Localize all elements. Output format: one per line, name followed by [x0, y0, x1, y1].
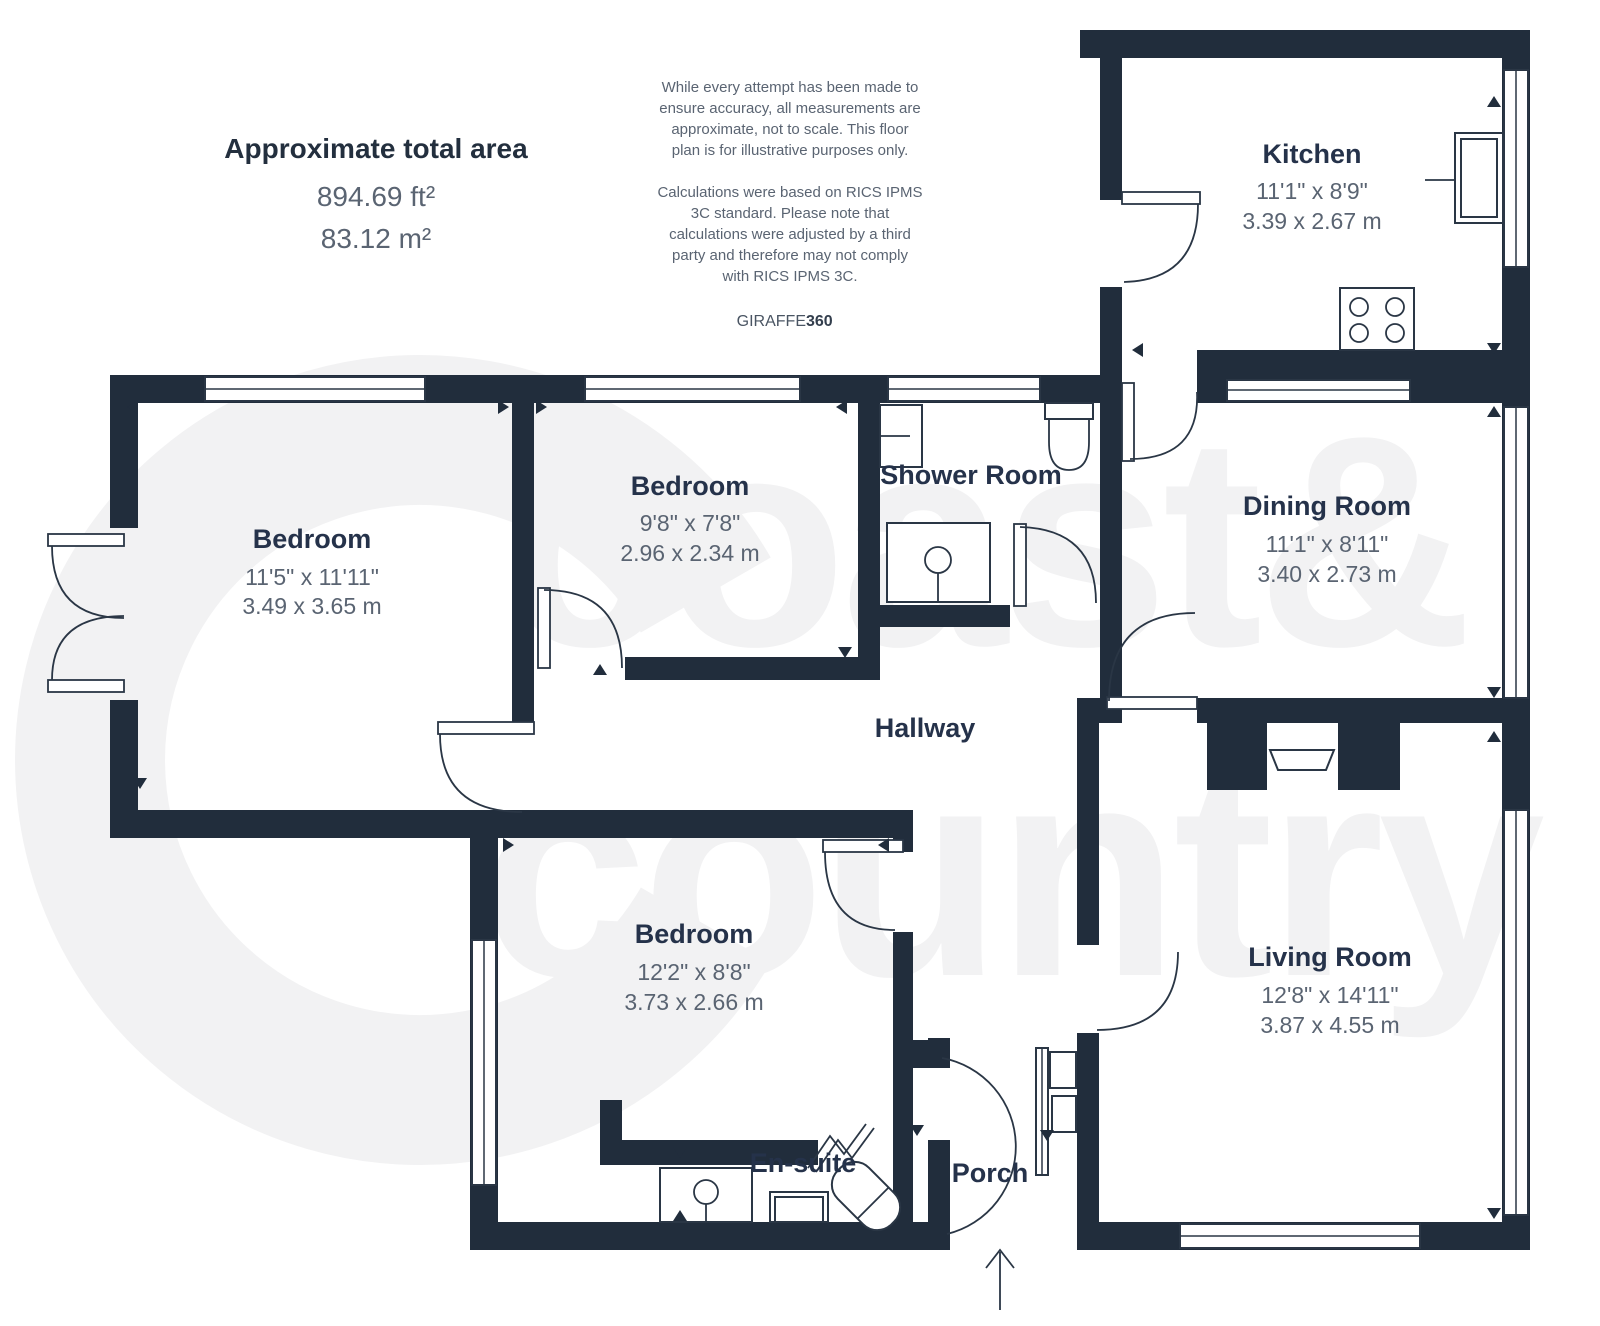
disclaimer-line: While every attempt has been made to: [662, 79, 919, 96]
room-label-porch: Porch: [952, 1158, 1029, 1188]
shower-tray: [887, 523, 990, 602]
window: [205, 377, 425, 401]
wall-segment: [928, 1140, 950, 1250]
wall-segment: [110, 700, 138, 812]
kitchen-sink: [1425, 133, 1503, 223]
room-dims-metric: 3.49 x 3.65 m: [242, 593, 381, 619]
sink: [770, 1192, 828, 1222]
room-dims-metric: 2.96 x 2.34 m: [620, 540, 759, 566]
room-label-kitchen: Kitchen: [1262, 139, 1361, 169]
room-label-bedroom2: Bedroom: [631, 471, 750, 501]
door: [942, 1058, 1016, 1234]
shower-tray: [660, 1168, 752, 1222]
room-dims-imperial: 12'2" x 8'8": [637, 959, 750, 985]
disclaimer-line: party and therefore may not comply: [672, 247, 908, 264]
entrance-arrow-icon: [986, 1250, 1014, 1310]
disclaimer: While every attempt has been made to ens…: [657, 79, 922, 330]
brand-suffix: 360: [806, 313, 833, 330]
window: [472, 940, 496, 1185]
room-dims-metric: 3.87 x 4.55 m: [1260, 1012, 1399, 1038]
wall-segment: [893, 932, 913, 1040]
disclaimer-line: plan is for illustrative purposes only.: [672, 142, 909, 159]
wall-segment: [858, 403, 880, 680]
disclaimer-line: with RICS IPMS 3C.: [721, 268, 857, 285]
disclaimer-line: calculations were adjusted by a third: [669, 226, 911, 243]
room-label-hallway: Hallway: [875, 713, 976, 743]
room-dims-imperial: 11'1" x 8'9": [1256, 178, 1368, 204]
room-dims-metric: 3.73 x 2.66 m: [624, 989, 763, 1015]
wall-segment: [625, 657, 880, 680]
room-label-bedroom1: Bedroom: [253, 524, 372, 554]
door: [1122, 192, 1200, 282]
wall-segment: [110, 810, 913, 838]
disclaimer-line: approximate, not to scale. This floor: [671, 121, 908, 138]
summary-title: Approximate total area: [224, 133, 528, 164]
window: [888, 377, 1040, 401]
room-label-bedroom3: Bedroom: [635, 919, 754, 949]
wall-segment: [1077, 1033, 1099, 1250]
window: [1504, 70, 1528, 267]
disclaimer-line: ensure accuracy, all measurements are: [659, 100, 921, 117]
wall-segment: [1197, 698, 1530, 723]
wall-segment: [858, 605, 1010, 627]
room-dims-imperial: 9'8" x 7'8": [640, 510, 741, 536]
window: [1180, 1224, 1420, 1248]
wall-segment: [1077, 698, 1099, 945]
floorplan-page: coast& country Approximate total area 89…: [0, 0, 1600, 1326]
window: [1504, 407, 1528, 698]
room-dims-imperial: 12'8" x 14'11": [1261, 982, 1398, 1008]
summary-area-imperial: 894.69 ft²: [317, 181, 435, 212]
sink: [880, 405, 922, 467]
room-dims-imperial: 11'5" x 11'11": [245, 564, 379, 590]
brand-name: GIRAFFE: [737, 313, 806, 330]
room-label-shower: Shower Room: [880, 460, 1062, 490]
room-label-ensuite: En-suite: [750, 1148, 857, 1178]
window: [585, 377, 800, 401]
summary-area-metric: 83.12 m²: [321, 223, 432, 254]
disclaimer-line: 3C standard. Please note that: [691, 205, 890, 222]
area-summary: Approximate total area 894.69 ft² 83.12 …: [224, 133, 528, 254]
window: [1036, 1048, 1076, 1175]
window: [1504, 810, 1528, 1215]
window: [1227, 380, 1410, 401]
wall-segment: [110, 403, 138, 528]
room-label-living: Living Room: [1248, 942, 1412, 972]
disclaimer-line: Calculations were based on RICS IPMS: [657, 184, 922, 201]
floorplan-svg: coast& country Approximate total area 89…: [0, 0, 1600, 1326]
wall-segment: [928, 1038, 950, 1068]
wall-segment: [1080, 30, 1530, 58]
room-dims-imperial: 11'1" x 8'11": [1266, 531, 1389, 557]
room-dims-metric: 3.40 x 2.73 m: [1257, 561, 1396, 587]
wall-segment: [512, 403, 534, 725]
room-label-dining: Dining Room: [1243, 491, 1411, 521]
hob: [1340, 288, 1414, 350]
room-dims-metric: 3.39 x 2.67 m: [1242, 208, 1381, 234]
